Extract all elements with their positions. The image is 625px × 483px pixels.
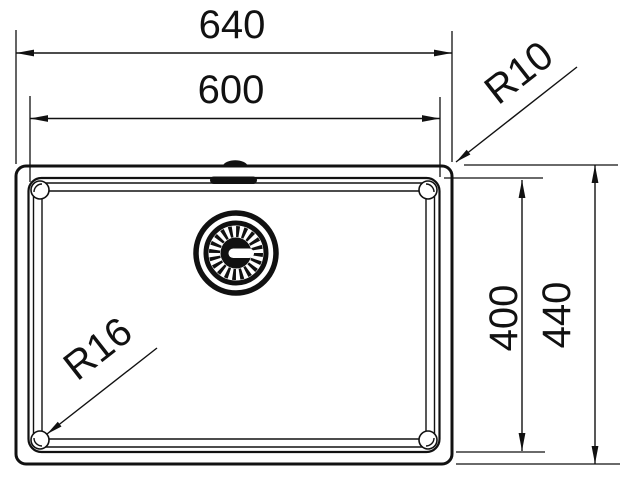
rim-markings [210, 160, 257, 184]
dim-label-overall-depth: 440 [537, 282, 577, 349]
rim-slot-mark [210, 177, 257, 185]
dimension-lines [16, 53, 595, 464]
arrow-440-bottom [592, 446, 599, 464]
arrow-640-left [16, 50, 34, 57]
drain-cap-slot [229, 249, 255, 259]
arrow-440-top [592, 165, 599, 183]
sink-bowl-edge [42, 191, 426, 439]
arrow-400-top [519, 180, 526, 198]
extension-lines [16, 30, 620, 464]
drain-icon [196, 213, 276, 293]
dim-label-overall-width: 640 [199, 5, 266, 45]
sink-dimension-drawing: 640 600 400 440 R10 R16 [0, 0, 625, 483]
arrow-400-bottom [519, 433, 526, 451]
rim-bump-mark [223, 160, 248, 165]
sink-rim-line-1 [29, 178, 440, 452]
arrowheads [16, 50, 598, 464]
dim-label-bowl-depth: 400 [484, 285, 524, 352]
arrow-640-right [434, 50, 452, 57]
arrow-600-right [422, 115, 440, 122]
dim-label-bowl-width: 600 [198, 70, 265, 110]
arrow-600-left [30, 115, 48, 122]
